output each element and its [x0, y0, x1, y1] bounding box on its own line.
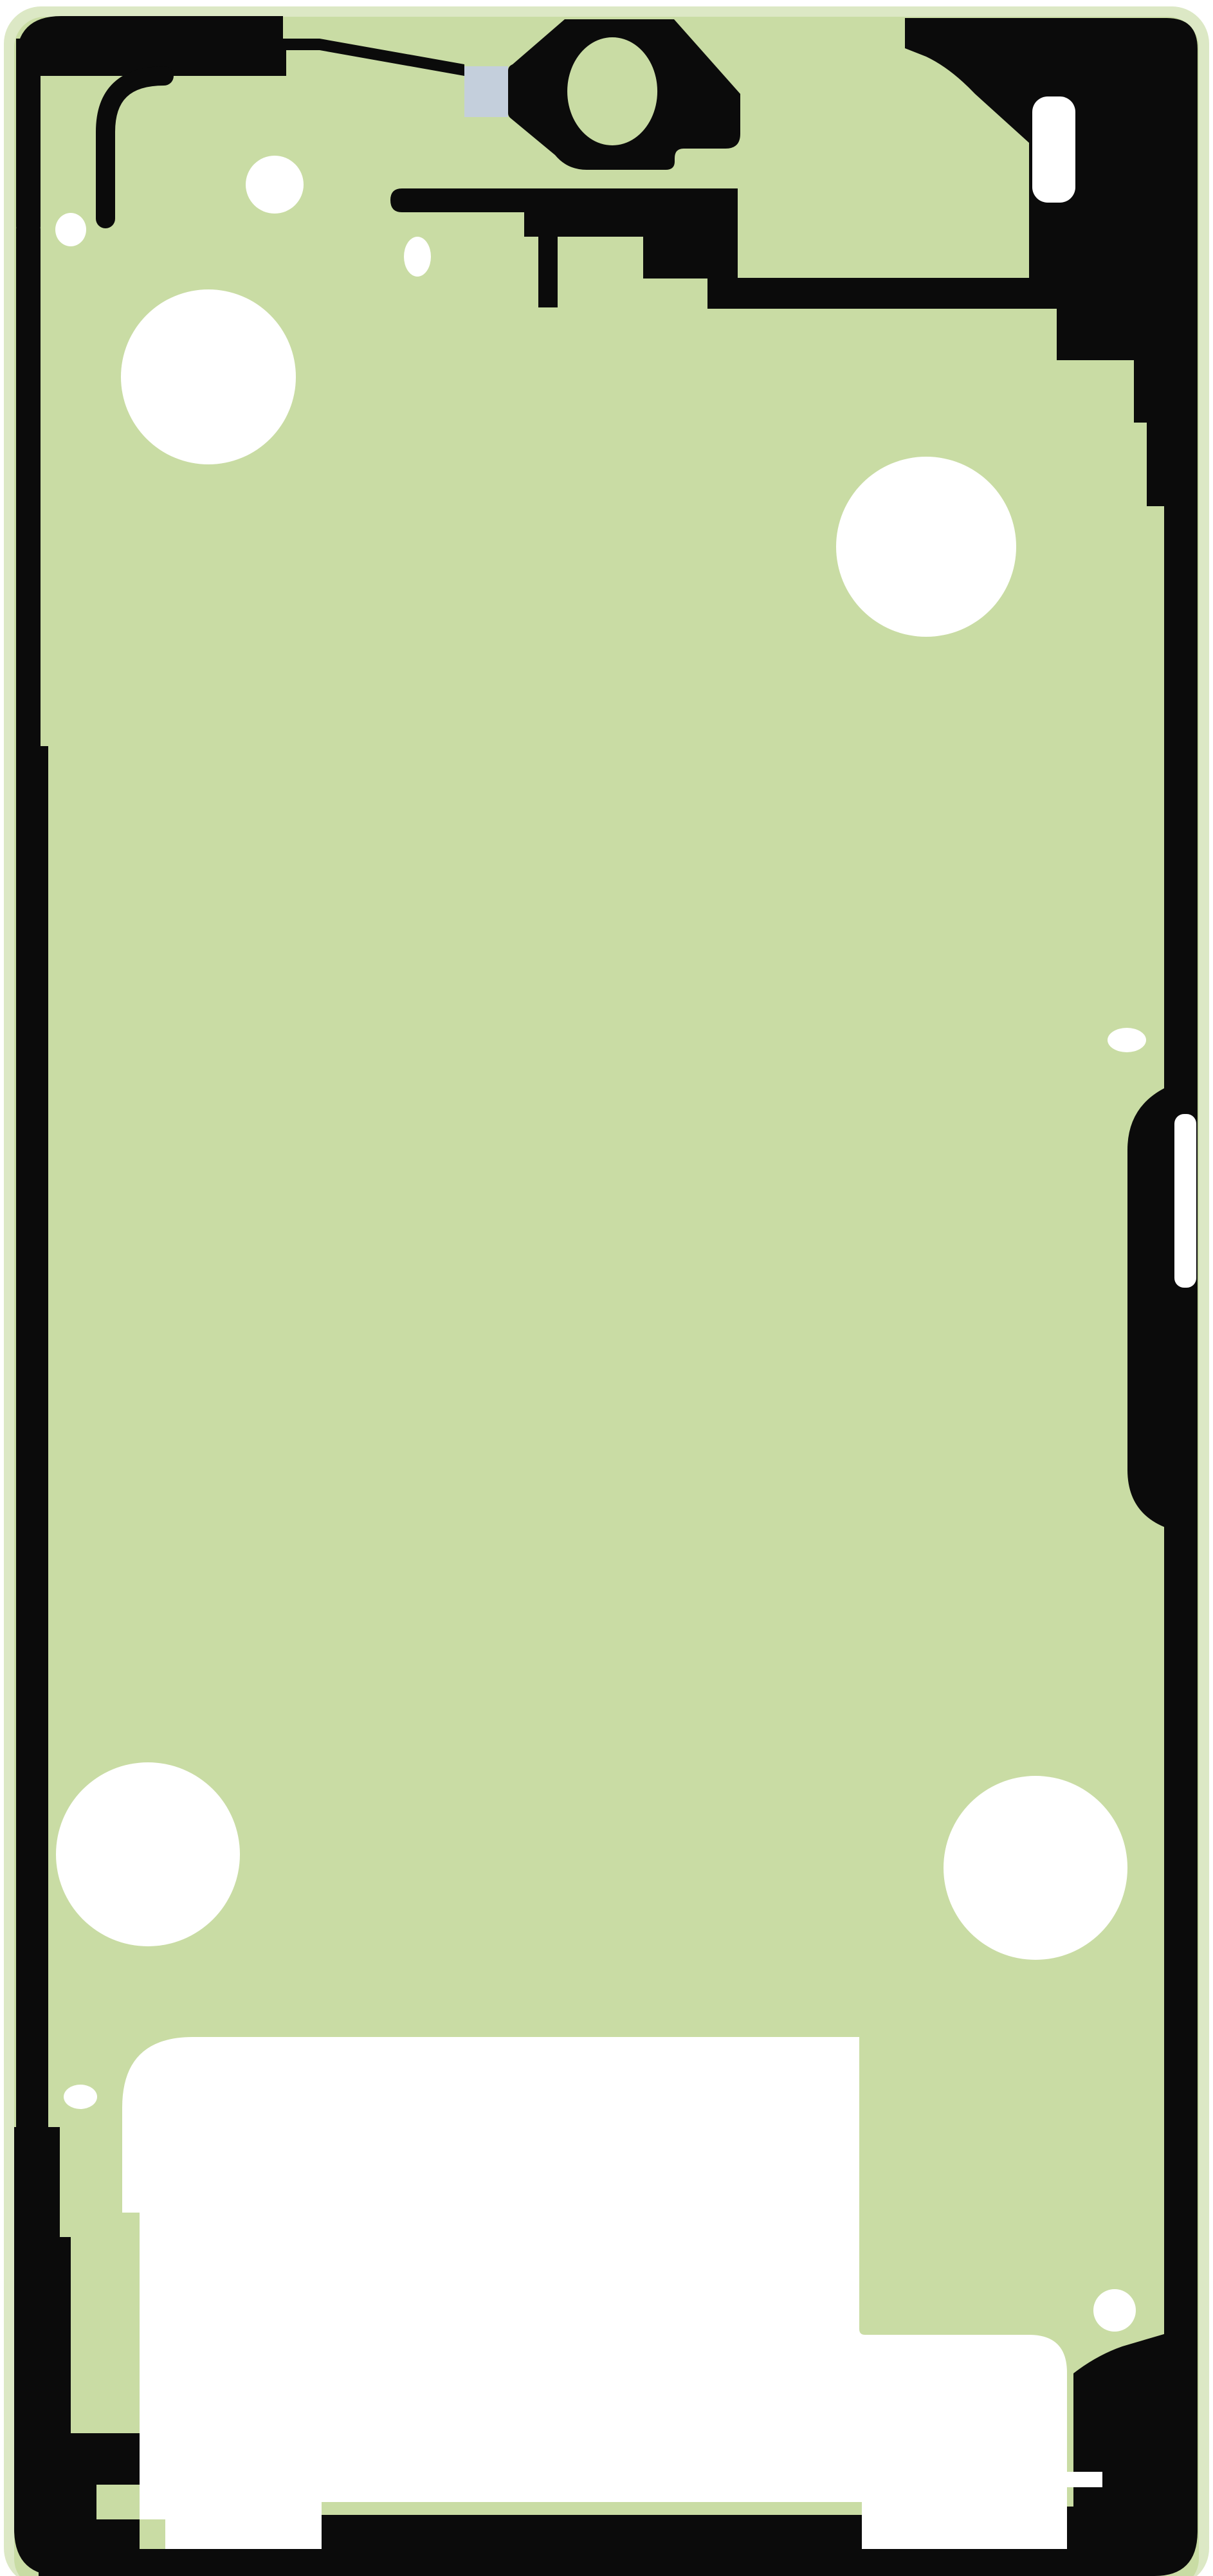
hole-lower-left-large: [56, 1762, 240, 1946]
outline-step-band-tick: [538, 237, 558, 307]
outline-right-band-lower: [1164, 1505, 1198, 2354]
outline-left-line-upper: [16, 228, 41, 749]
adhesive-sticker-photo: [0, 0, 1213, 2576]
slot-power-button: [1174, 1114, 1196, 1288]
hole-right-middle-small: [1108, 1028, 1146, 1052]
photo-canvas: [0, 0, 1213, 2576]
hole-upper-left-large: [121, 289, 296, 464]
outline-left-step-2: [14, 2237, 71, 2436]
hole-bottom-left-small: [64, 2085, 97, 2109]
hole-left-upper-small: [55, 213, 86, 246]
screw-hole-top-left: [246, 156, 304, 214]
hole-upper-right-large: [836, 457, 1016, 637]
hole-lower-right-large: [944, 1776, 1127, 1960]
slot-top-right: [1032, 96, 1075, 203]
hole-bottom-right-small: [1093, 2289, 1136, 2332]
outline-top-left-corner: [16, 16, 320, 76]
outline-right-band-upper: [1164, 283, 1198, 1106]
outline-left-band-upper: [16, 39, 41, 238]
outline-under-island-band: [738, 278, 1060, 309]
outline-left-line-lower: [16, 746, 48, 2129]
hole-upper-middle-small: [404, 237, 431, 277]
outline-left-step-1: [14, 2127, 60, 2240]
outline-bottom-middle-band: [322, 2515, 862, 2576]
liner-tab: [464, 66, 508, 117]
